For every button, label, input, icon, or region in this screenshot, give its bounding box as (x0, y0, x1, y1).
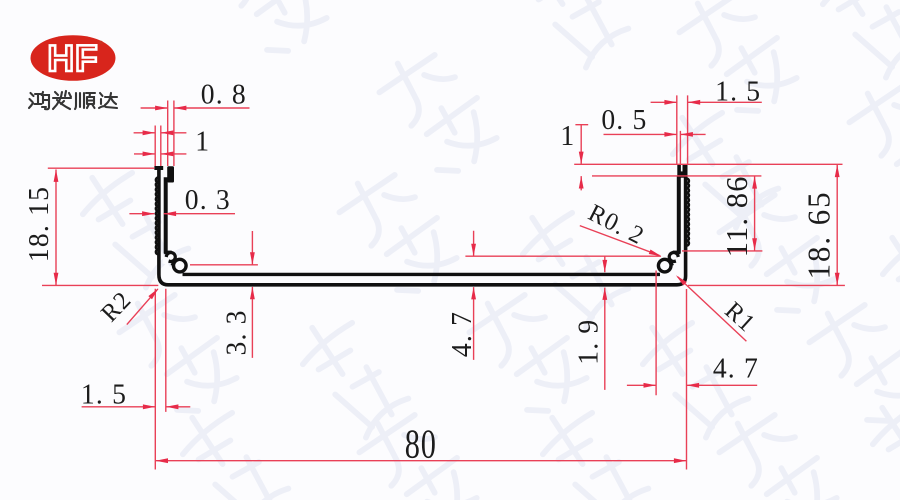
svg-text:1: 1 (195, 126, 210, 157)
svg-text:4. 7: 4. 7 (713, 353, 759, 384)
svg-text:80: 80 (405, 421, 437, 466)
svg-text:4. 7: 4. 7 (447, 311, 478, 357)
svg-text:HF: HF (47, 38, 98, 79)
svg-text:1. 5: 1. 5 (715, 76, 761, 107)
svg-text:1. 9: 1. 9 (573, 319, 604, 365)
svg-text:0. 5: 0. 5 (601, 105, 647, 136)
svg-text:3. 3: 3. 3 (221, 309, 252, 355)
svg-text:0. 3: 0. 3 (185, 185, 231, 216)
svg-text:18. 15: 18. 15 (24, 186, 55, 262)
svg-text:11. 86: 11. 86 (720, 175, 754, 257)
svg-text:1: 1 (560, 121, 575, 152)
svg-text:1. 5: 1. 5 (81, 379, 127, 410)
svg-text:18. 65: 18. 65 (801, 190, 836, 279)
svg-text:0. 8: 0. 8 (201, 79, 247, 110)
